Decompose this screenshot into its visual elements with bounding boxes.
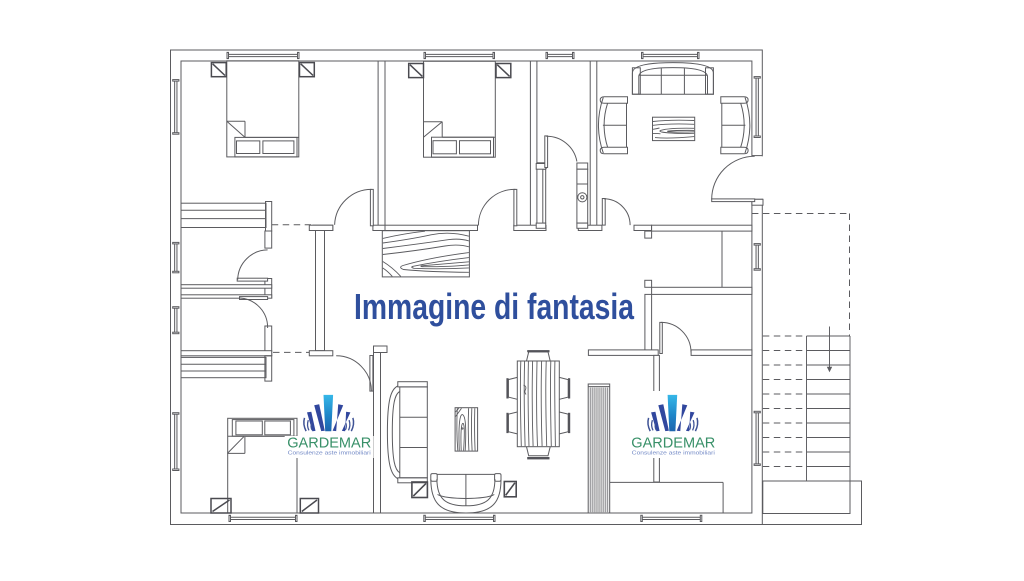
svg-text:Consulenze aste immobiliari: Consulenze aste immobiliari xyxy=(288,451,371,457)
svg-text:GARDEMAR: GARDEMAR xyxy=(631,435,715,452)
svg-text:Immagine di fantasia: Immagine di fantasia xyxy=(354,286,635,327)
svg-text:Consulenze aste immobiliari: Consulenze aste immobiliari xyxy=(632,451,715,457)
svg-text:GARDEMAR: GARDEMAR xyxy=(287,435,371,452)
